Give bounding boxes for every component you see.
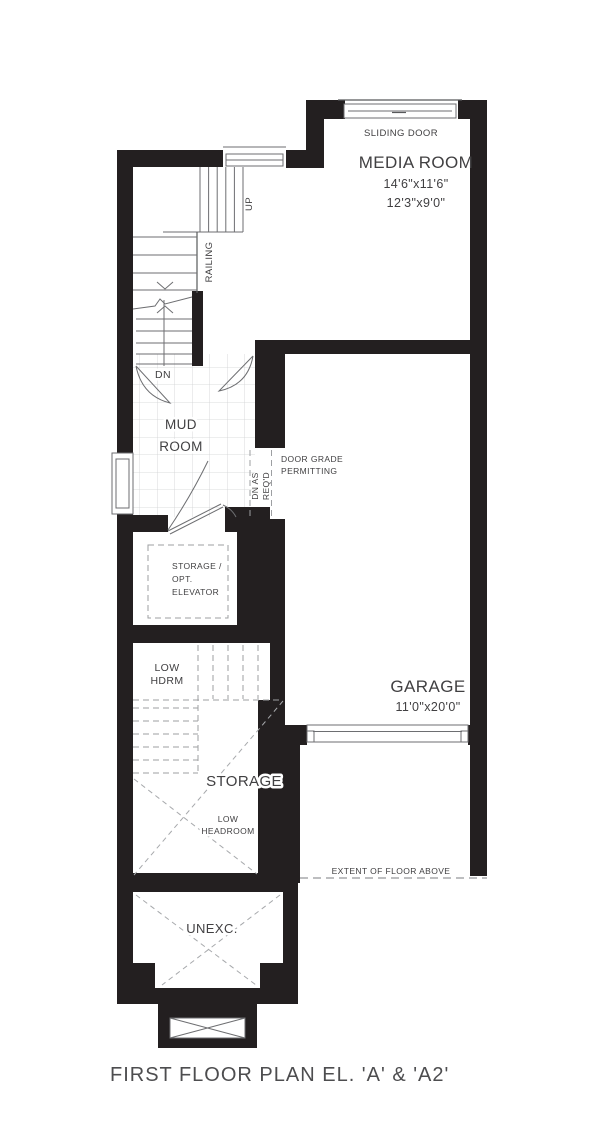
dn-as-label: DN AS xyxy=(250,472,260,500)
up-label: UP xyxy=(244,197,255,211)
media-room-dim2: 12'3"x9'0" xyxy=(387,196,446,210)
mud-room-label-1: MUD xyxy=(165,417,197,432)
floor-plan-drawing: SLIDING DOOR MEDIA ROOM 14'6"x11'6" 12'3… xyxy=(0,0,600,1140)
wall-elevator-right xyxy=(237,532,270,625)
wall-driveway-left xyxy=(285,745,300,883)
mud-room-tile-floor xyxy=(133,354,255,517)
wall-stair-divider xyxy=(192,291,203,366)
mud-room-window xyxy=(112,453,133,514)
unexc-label: UNEXC. xyxy=(186,921,238,936)
plan-title: FIRST FLOOR PLAN EL. 'A' & 'A2' xyxy=(110,1064,449,1086)
stair-arrow-down-icon xyxy=(157,282,173,289)
sliding-door-label: SLIDING DOOR xyxy=(364,128,438,139)
wall-garage-left-upper xyxy=(270,354,285,448)
dn-label: DN xyxy=(155,369,171,381)
mud-room-label-2: ROOM xyxy=(159,439,203,454)
wall-top-left-of-slider xyxy=(306,100,345,119)
elevator-label-1: STORAGE / xyxy=(172,561,222,571)
media-room-dim1: 14'6"x11'6" xyxy=(383,177,448,191)
garage-dim: 11'0"x20'0" xyxy=(395,700,460,714)
garage-door xyxy=(307,725,468,742)
elevator-label-2: OPT. xyxy=(172,574,193,584)
unexc-x-brace xyxy=(136,895,280,985)
garage-label: GARAGE xyxy=(390,677,465,696)
door-grade-label-2: PERMITTING xyxy=(281,466,337,476)
wall-right-of-window xyxy=(286,150,307,168)
staircase xyxy=(133,167,243,366)
sliding-door xyxy=(338,100,462,118)
door-grade-label-1: DOOR GRADE xyxy=(281,454,343,464)
wall-garage-door-jamb-left xyxy=(285,725,307,745)
wall-unexc-top xyxy=(117,873,298,892)
stair-break-line xyxy=(133,297,192,309)
window-over-stairs xyxy=(223,147,286,167)
reqd-label: REQ'D xyxy=(261,472,271,500)
cold-cellar-window xyxy=(170,1018,245,1038)
extent-of-floor-above-label: EXTENT OF FLOOR ABOVE xyxy=(332,866,451,876)
wall-garage-door-jamb-right xyxy=(468,725,487,745)
storage-label: STORAGE xyxy=(206,773,282,790)
wall-elevator-bottom xyxy=(117,625,270,643)
media-room-label: MEDIA ROOM xyxy=(359,153,474,172)
wall-unexc-bottom xyxy=(117,988,298,1004)
stair-arrow-up-icon xyxy=(157,306,173,313)
wall-mud-bottom-left xyxy=(117,515,168,532)
elevator-label-3: ELEVATOR xyxy=(172,587,219,597)
wall-mud-right xyxy=(255,340,270,448)
wall-unexc-right xyxy=(283,892,298,963)
wall-garage-left-lower xyxy=(270,519,285,723)
low-headroom-label-2: HEADROOM xyxy=(201,826,254,836)
wall-garage-top xyxy=(255,340,487,354)
wall-right-outer xyxy=(470,100,487,876)
floor-plan-page: SLIDING DOOR MEDIA ROOM 14'6"x11'6" 12'3… xyxy=(0,0,600,1140)
low-hdrm-label-1: LOW xyxy=(154,662,179,674)
railing-label: RAILING xyxy=(204,242,215,283)
low-headroom-label-1: LOW xyxy=(218,814,239,824)
low-hdrm-label-2: HDRM xyxy=(150,675,183,687)
